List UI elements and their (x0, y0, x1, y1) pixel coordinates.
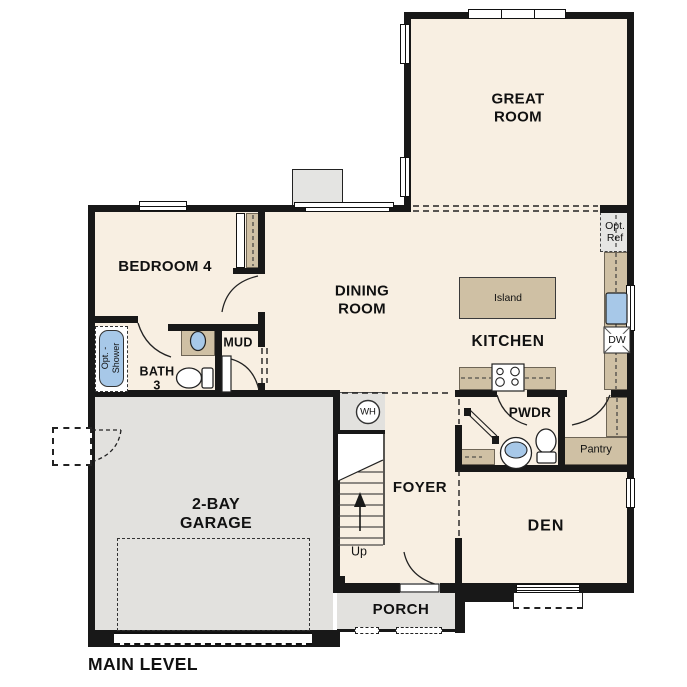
closet-door (236, 213, 245, 268)
den-window-bay (513, 593, 583, 609)
kitchen-counter-right (604, 252, 628, 390)
pwdr-label: PWDR (509, 405, 551, 421)
sliding-door-glyph (305, 207, 390, 212)
closet-bottom-wall (233, 268, 263, 274)
foyer-den-wall (455, 538, 462, 593)
porch-post-dash (396, 627, 442, 634)
kitchen-bottom-wall (611, 390, 634, 397)
bath-mud-wall (215, 324, 222, 390)
window-glyph (468, 9, 566, 19)
garage-right-wall (333, 390, 340, 590)
pwdr-left-wall (455, 425, 462, 470)
foyer-label: FOYER (393, 479, 447, 497)
floor-plan: GREAT ROOM DINING ROOM BEDROOM 4 KITCHEN… (0, 0, 687, 687)
kitchen-label: KITCHEN (471, 333, 544, 351)
window-glyph (400, 157, 410, 197)
opt-shower-label: Opt. - Shower (100, 343, 123, 374)
porch-post-dash (355, 627, 379, 634)
dw-label: DW (607, 334, 627, 346)
mud-label: MUD (223, 336, 252, 351)
stair-divider (337, 430, 385, 434)
wall (88, 205, 95, 397)
bath3-vanity (181, 327, 215, 356)
pwdr-closet-shelf (461, 449, 495, 465)
bath3-label: BATH 3 (140, 365, 175, 393)
bedroom-wall (258, 312, 265, 347)
wall (627, 12, 634, 212)
pantry-shelf-vertical (606, 397, 628, 437)
bedroom-wall (258, 212, 265, 274)
foundation-step (465, 593, 515, 602)
foundation-step (455, 593, 465, 633)
opt-ref-label: Opt. Ref (605, 220, 625, 244)
garage-door-panel (114, 632, 312, 645)
den-label: DEN (528, 518, 565, 537)
porch-wall (333, 583, 400, 593)
great-room-label: GREAT ROOM (492, 90, 545, 125)
window-glyph (139, 201, 187, 211)
window-glyph (400, 24, 410, 64)
bath-wall (168, 324, 258, 331)
plan-title: MAIN LEVEL (88, 654, 198, 675)
pantry-label: Pantry (580, 444, 612, 457)
window-glyph (626, 478, 635, 508)
front-door-gap (400, 583, 440, 593)
wh-label: WH (360, 406, 376, 417)
window-glyph (626, 285, 635, 331)
kitchen-counter-bottom (459, 367, 556, 390)
bath-wall (88, 316, 138, 323)
island-label: Island (494, 292, 522, 304)
bedroom4-label: BEDROOM 4 (118, 258, 212, 276)
fireplace-box (292, 169, 343, 206)
window-glyph (516, 584, 580, 593)
opt-service-door-box (52, 427, 92, 466)
den-top-wall (455, 465, 627, 472)
garage-door-swing-area (117, 538, 310, 631)
porch-label: PORCH (373, 601, 430, 619)
pwdr-pantry-wall (558, 391, 565, 472)
garage-label: 2-BAY GARAGE (180, 496, 252, 534)
up-label: Up (351, 545, 367, 560)
mud-stub-wall (258, 383, 265, 397)
kitchen-bottom-wall (455, 390, 497, 397)
dining-room-label: DINING ROOM (335, 282, 389, 317)
porch-wall (440, 583, 455, 593)
